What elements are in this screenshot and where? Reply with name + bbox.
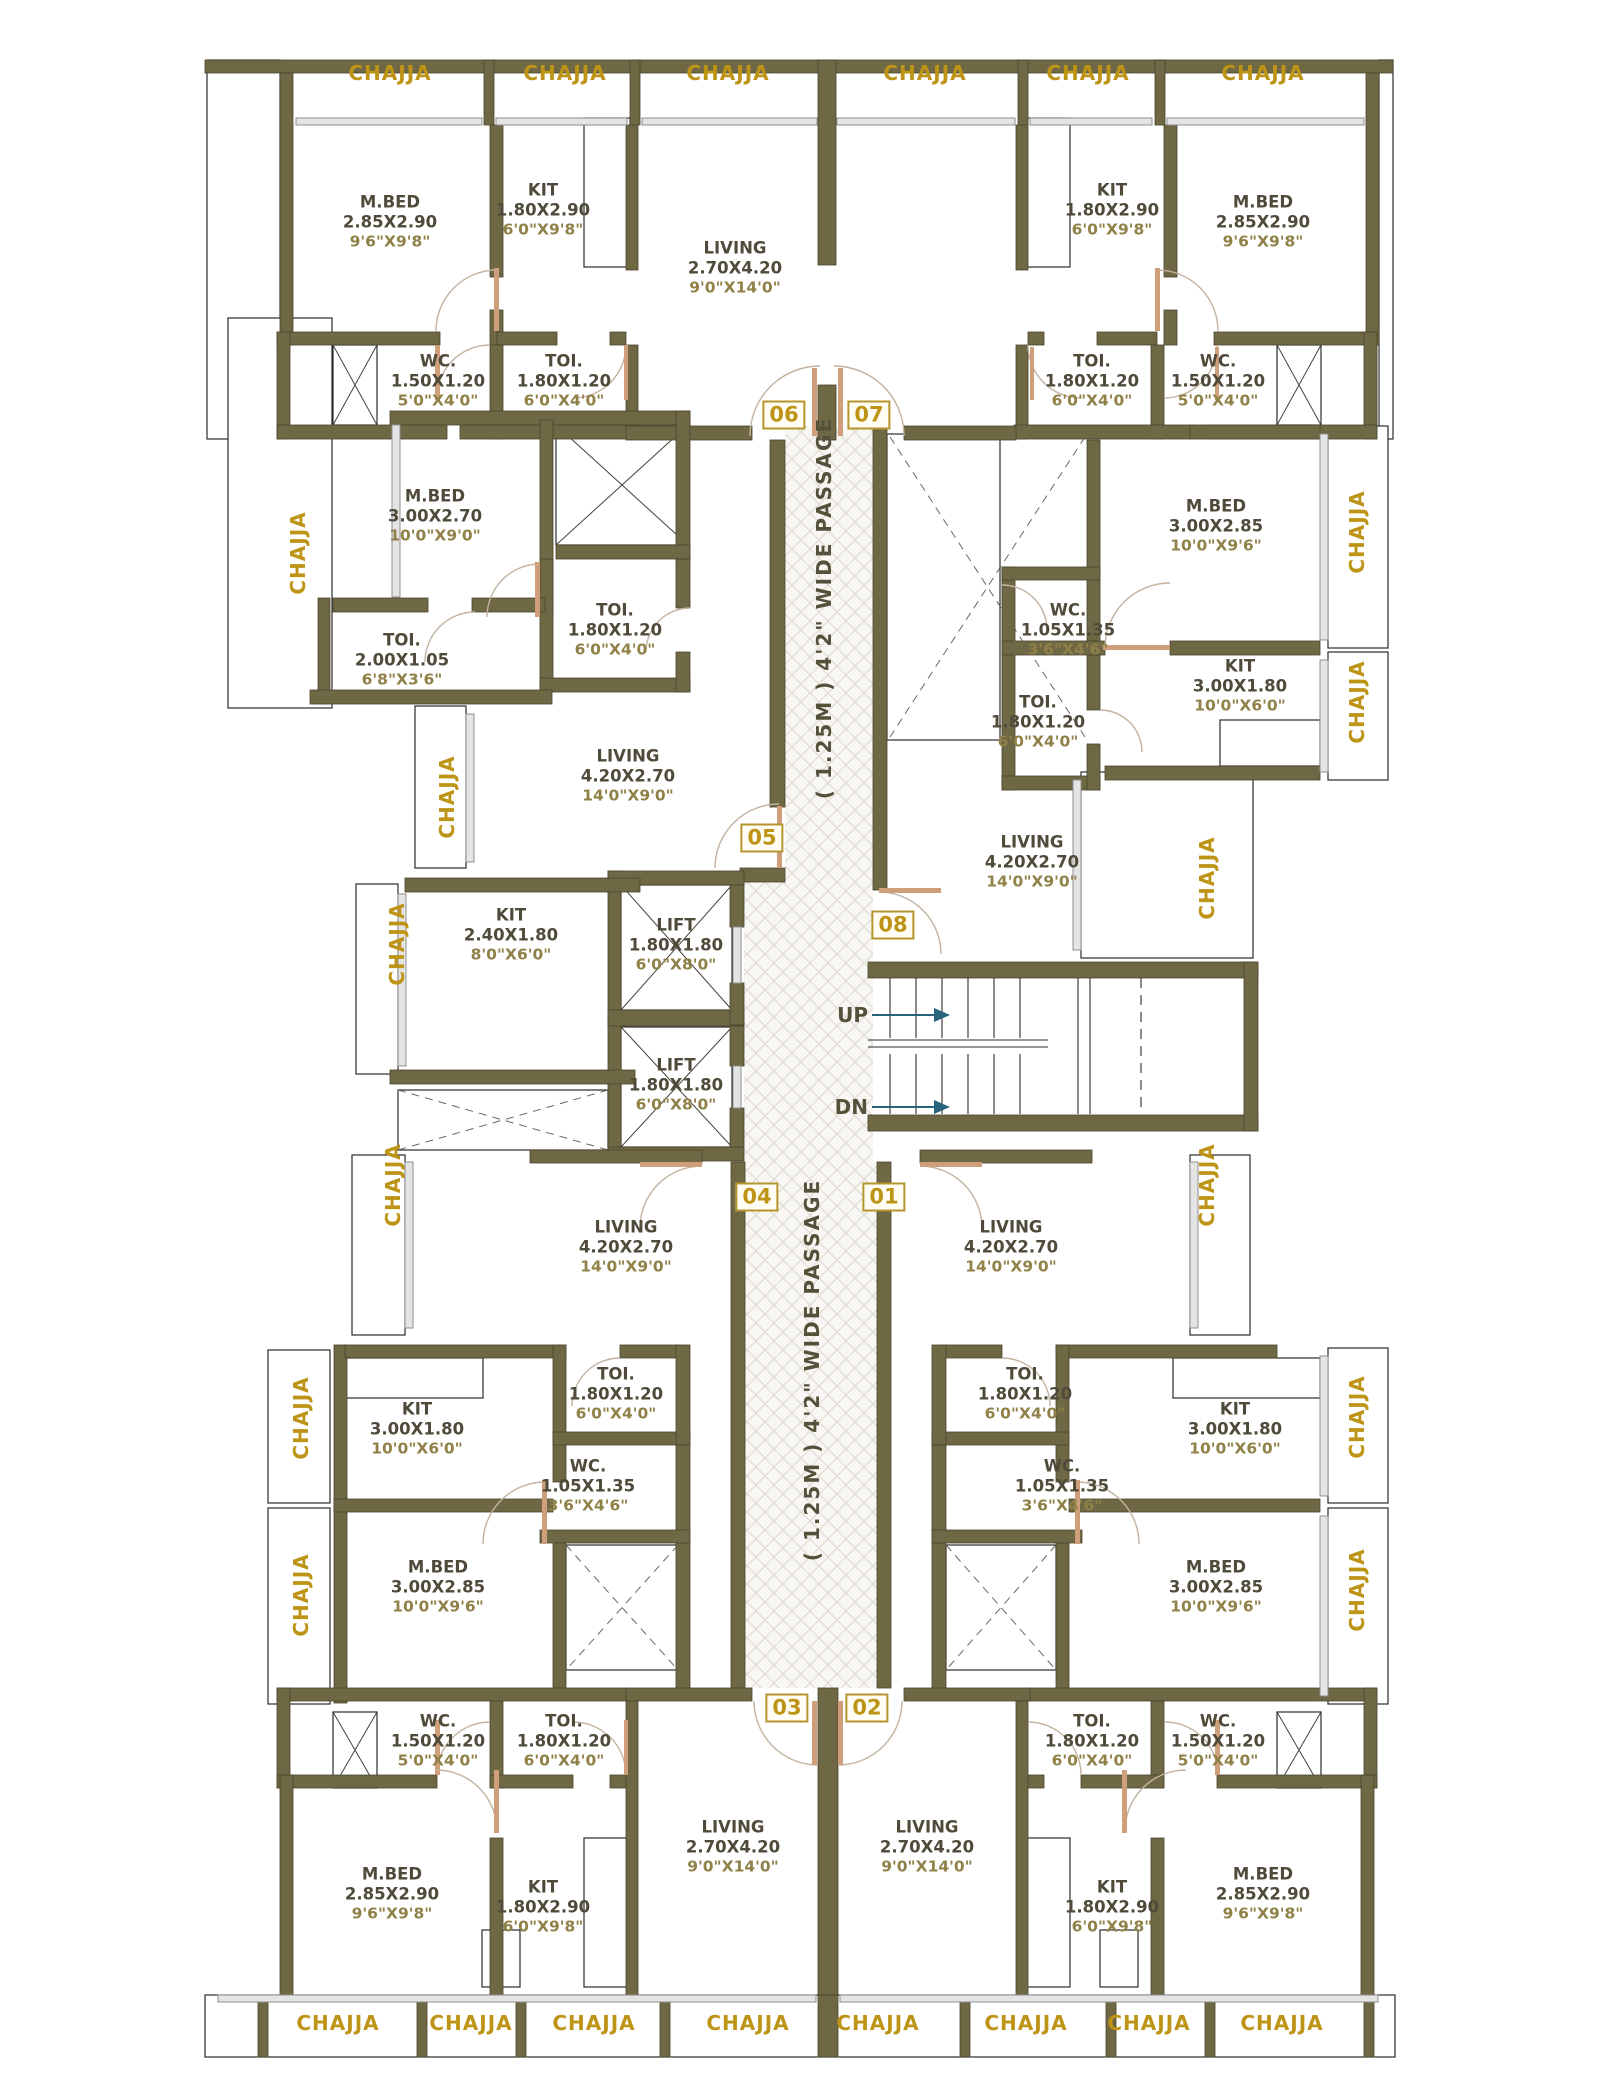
room-label: LIVING2.70X4.209'0"X14'0" [880,1817,974,1876]
room-label: LIVING4.20X2.7014'0"X9'0" [581,746,675,805]
chajja-label: CHAJJA [286,511,310,594]
room-label: TOI.1.80X1.206'0"X4'0" [1045,1711,1139,1770]
room-label: TOI.1.80X1.206'0"X4'0" [568,600,662,659]
room-label: KIT3.00X1.8010'0"X6'0" [1193,656,1287,715]
chajja-label: CHAJJA [984,2011,1067,2035]
room-label: LIVING4.20X2.7014'0"X9'0" [985,832,1079,891]
room-label: WC.1.50X1.205'0"X4'0" [1171,351,1265,410]
chajja-label: CHAJJA [883,61,966,85]
room-label: WC.1.05X1.353'6"X4'6" [541,1456,635,1515]
unit-badge: 04 [735,1183,778,1212]
chajja-label: CHAJJA [1195,836,1219,919]
room-label: M.BED2.85X2.909'6"X9'8" [1216,1864,1310,1923]
room-label: TOI.1.80X1.206'0"X4'0" [1045,351,1139,410]
room-label: KIT1.80X2.906'0"X9'8" [496,1877,590,1936]
chajja-label: CHAJJA [435,755,459,838]
room-label: M.BED3.00X2.8510'0"X9'6" [1169,1557,1263,1616]
room-label: KIT1.80X2.906'0"X9'8" [496,180,590,239]
stairs-up-label: UP [837,1003,868,1027]
chajja-label: CHAJJA [429,2011,512,2035]
room-label: M.BED2.85X2.909'6"X9'8" [345,1864,439,1923]
room-label: M.BED2.85X2.909'6"X9'8" [343,192,437,251]
chajja-label: CHAJJA [289,1553,313,1636]
unit-badge: 03 [765,1694,808,1723]
chajja-label: CHAJJA [836,2011,919,2035]
room-label: LIVING2.70X4.209'0"X14'0" [688,238,782,297]
unit-badge: 08 [871,911,914,940]
room-label: LIVING2.70X4.209'0"X14'0" [686,1817,780,1876]
floor-plan-drawing [0,0,1600,2100]
floor-plan: M.BED2.85X2.909'6"X9'8" KIT1.80X2.906'0"… [0,0,1600,2100]
passage-label: ( 1.25M ) 4'2" WIDE PASSAGE [812,417,836,799]
chajja-label: CHAJJA [1221,61,1304,85]
chajja-label: CHAJJA [686,61,769,85]
room-label: M.BED2.85X2.909'6"X9'8" [1216,192,1310,251]
room-label: TOI.1.80X1.206'0"X4'0" [517,351,611,410]
unit-badge: 06 [762,401,805,430]
room-label: M.BED3.00X2.7010'0"X9'0" [388,486,482,545]
chajja-label: CHAJJA [1240,2011,1323,2035]
chajja-label: CHAJJA [1195,1143,1219,1226]
room-label: KIT3.00X1.8010'0"X6'0" [370,1399,464,1458]
room-label: WC.1.05X1.353'6"X4'6" [1021,600,1115,659]
staircase [868,978,1141,1114]
room-label: M.BED3.00X2.8510'0"X9'6" [1169,496,1263,555]
chajja-label: CHAJJA [1345,1375,1369,1458]
room-label: WC.1.50X1.205'0"X4'0" [391,1711,485,1770]
chajja-label: CHAJJA [1107,2011,1190,2035]
room-label: KIT1.80X2.906'0"X9'8" [1065,1877,1159,1936]
room-label: KIT3.00X1.8010'0"X6'0" [1188,1399,1282,1458]
room-label: M.BED3.00X2.8510'0"X9'6" [391,1557,485,1616]
chajja-label: CHAJJA [552,2011,635,2035]
room-label: TOI.1.80X1.206'0"X4'0" [517,1711,611,1770]
chajja-label: CHAJJA [706,2011,789,2035]
chajja-label: CHAJJA [296,2011,379,2035]
room-label: WC.1.05X1.353'6"X4'6" [1015,1456,1109,1515]
room-label: KIT2.40X1.808'0"X6'0" [464,905,558,964]
unit-badge: 05 [740,824,783,853]
chajja-label: CHAJJA [385,902,409,985]
chajja-label: CHAJJA [1345,1548,1369,1631]
room-label: TOI.1.80X1.206'0"X4'0" [978,1364,1072,1423]
stairs-dn-label: DN [835,1095,868,1119]
room-label: KIT1.80X2.906'0"X9'8" [1065,180,1159,239]
room-label: WC.1.50X1.205'0"X4'0" [1171,1711,1265,1770]
chajja-label: CHAJJA [1345,490,1369,573]
room-label: WC.1.50X1.205'0"X4'0" [391,351,485,410]
chajja-label: CHAJJA [1345,660,1369,743]
chajja-label: CHAJJA [348,61,431,85]
room-label: LIVING4.20X2.7014'0"X9'0" [964,1217,1058,1276]
chajja-label: CHAJJA [1046,61,1129,85]
chajja-label: CHAJJA [289,1376,313,1459]
room-label: LIVING4.20X2.7014'0"X9'0" [579,1217,673,1276]
room-label: TOI.1.80X1.206'0"X4'0" [991,692,1085,751]
unit-badge: 07 [847,401,890,430]
room-label: LIFT1.80X1.806'0"X8'0" [629,915,723,974]
unit-badge: 01 [862,1183,905,1212]
unit-badge: 02 [845,1694,888,1723]
room-label: LIFT1.80X1.806'0"X8'0" [629,1055,723,1114]
passage-label: ( 1.25M ) 4'2" WIDE PASSAGE [800,1179,824,1561]
chajja-label: CHAJJA [523,61,606,85]
room-label: TOI.2.00X1.056'8"X3'6" [355,630,449,689]
room-label: TOI.1.80X1.206'0"X4'0" [569,1364,663,1423]
chajja-label: CHAJJA [381,1143,405,1226]
